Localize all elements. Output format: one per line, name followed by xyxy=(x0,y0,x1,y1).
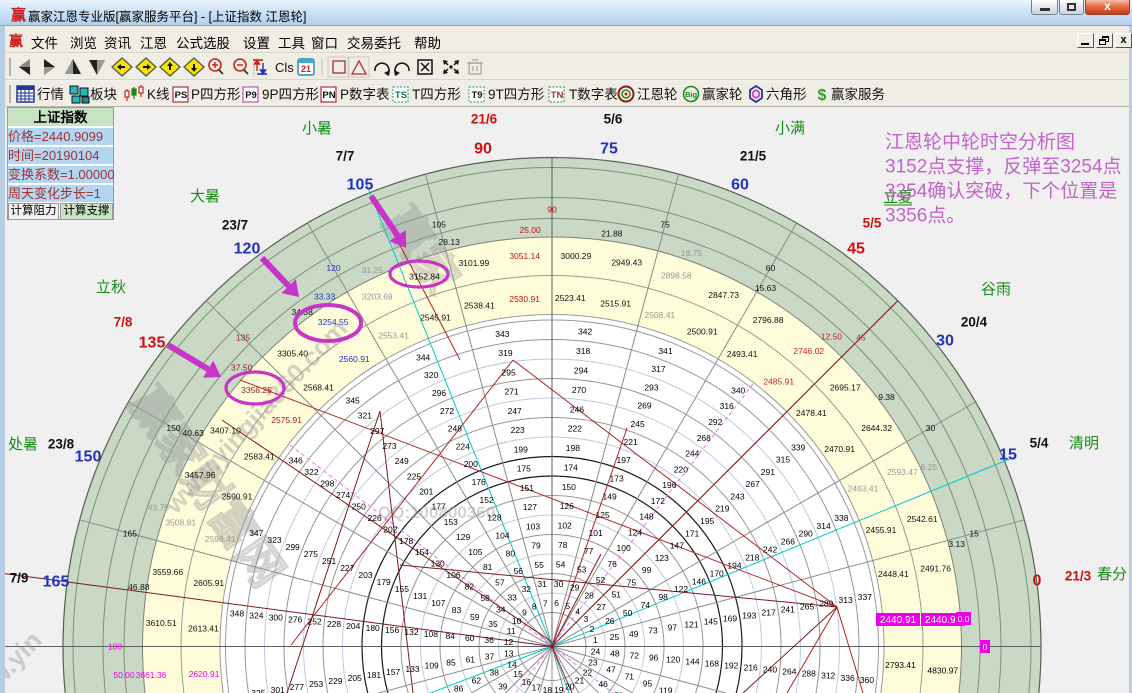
svg-text:291: 291 xyxy=(761,467,775,477)
svg-text:105: 105 xyxy=(347,177,374,194)
svg-text:298: 298 xyxy=(320,478,334,488)
svg-text:20: 20 xyxy=(565,682,575,692)
svg-text:48: 48 xyxy=(610,648,620,658)
svg-text:338: 338 xyxy=(834,513,848,523)
svg-text:7/9: 7/9 xyxy=(10,571,29,586)
svg-text:75: 75 xyxy=(660,220,670,230)
svg-text:201: 201 xyxy=(419,487,433,497)
svg-text:176: 176 xyxy=(472,477,486,487)
svg-text:265: 265 xyxy=(800,601,814,611)
svg-text:2485.91: 2485.91 xyxy=(763,376,794,386)
svg-text:173: 173 xyxy=(610,473,624,483)
svg-text:21/6: 21/6 xyxy=(471,112,498,127)
svg-text:168: 168 xyxy=(705,659,719,669)
svg-text:2448.41: 2448.41 xyxy=(878,569,909,579)
svg-text:129: 129 xyxy=(456,532,470,542)
svg-text:2560.91: 2560.91 xyxy=(339,354,370,364)
svg-text:6: 6 xyxy=(554,598,559,608)
svg-text:244: 244 xyxy=(685,449,699,459)
svg-text:9T四方形: 9T四方形 xyxy=(488,87,545,102)
svg-text:34: 34 xyxy=(496,605,506,615)
svg-text:248: 248 xyxy=(448,424,462,434)
svg-text:3.13: 3.13 xyxy=(948,539,965,549)
svg-text:82: 82 xyxy=(465,582,475,592)
svg-text:124: 124 xyxy=(628,527,642,537)
svg-text:P四方形: P四方形 xyxy=(191,87,241,102)
svg-text:16: 16 xyxy=(522,677,532,687)
svg-text:77: 77 xyxy=(584,546,594,556)
svg-text:240: 240 xyxy=(763,665,777,675)
svg-text:49: 49 xyxy=(629,629,639,639)
svg-text:205: 205 xyxy=(348,673,362,683)
svg-text:314: 314 xyxy=(817,521,831,531)
svg-text:272: 272 xyxy=(440,406,454,416)
svg-text:125: 125 xyxy=(596,510,610,520)
svg-text:33.33: 33.33 xyxy=(314,292,336,302)
svg-text:28.13: 28.13 xyxy=(439,237,461,247)
svg-text:174: 174 xyxy=(564,462,578,472)
svg-text:324: 324 xyxy=(249,611,263,621)
svg-text:131: 131 xyxy=(413,591,427,601)
svg-text:290: 290 xyxy=(799,529,813,539)
svg-text:5/6: 5/6 xyxy=(604,112,623,127)
svg-text:322: 322 xyxy=(304,467,318,477)
svg-text:3051.14: 3051.14 xyxy=(509,251,540,261)
svg-text:73: 73 xyxy=(648,626,658,636)
svg-text:106: 106 xyxy=(446,570,460,580)
svg-text:10: 10 xyxy=(512,616,522,626)
svg-text:127: 127 xyxy=(523,502,537,512)
svg-text:30: 30 xyxy=(936,333,954,350)
svg-text:81: 81 xyxy=(483,562,493,572)
svg-text:121: 121 xyxy=(684,620,698,630)
svg-text:276: 276 xyxy=(288,615,302,625)
svg-text:104: 104 xyxy=(495,531,509,541)
svg-text:123: 123 xyxy=(655,553,669,563)
svg-text:192: 192 xyxy=(724,661,738,671)
svg-text:2746.02: 2746.02 xyxy=(793,346,824,356)
svg-text:2470.91: 2470.91 xyxy=(824,444,855,454)
svg-text:225: 225 xyxy=(407,471,421,481)
svg-text:六角形: 六角形 xyxy=(766,87,807,102)
svg-text:2568.41: 2568.41 xyxy=(303,382,334,392)
svg-text:12: 12 xyxy=(504,637,514,647)
svg-text:172: 172 xyxy=(651,496,665,506)
svg-text:9.38: 9.38 xyxy=(878,392,895,402)
svg-text:320: 320 xyxy=(424,370,438,380)
svg-text:108: 108 xyxy=(424,629,438,639)
svg-text:2695.17: 2695.17 xyxy=(830,382,861,392)
svg-text:0.0: 0.0 xyxy=(958,614,970,624)
svg-text:2: 2 xyxy=(590,624,595,634)
svg-text:赢家服务: 赢家服务 xyxy=(831,86,885,102)
svg-text:220: 220 xyxy=(674,464,688,474)
svg-text:清明: 清明 xyxy=(1069,435,1099,452)
svg-text:9P四方形: 9P四方形 xyxy=(262,87,320,102)
svg-text:2593.47: 2593.47 xyxy=(887,467,918,477)
svg-text:266: 266 xyxy=(781,537,795,547)
svg-text:241: 241 xyxy=(781,604,795,614)
svg-text:33: 33 xyxy=(507,593,517,603)
svg-text:318: 318 xyxy=(576,346,590,356)
svg-text:293: 293 xyxy=(644,382,658,392)
svg-text:31.25: 31.25 xyxy=(362,265,384,275)
svg-text:315: 315 xyxy=(776,455,790,465)
svg-text:0: 0 xyxy=(983,642,988,652)
svg-text:252: 252 xyxy=(308,617,322,627)
svg-text:K线: K线 xyxy=(147,87,170,102)
svg-text:2542.61: 2542.61 xyxy=(907,514,938,524)
svg-text:小满: 小满 xyxy=(775,120,805,137)
svg-text:3661.36: 3661.36 xyxy=(136,670,167,680)
svg-text:大暑: 大暑 xyxy=(190,188,220,205)
svg-text:126: 126 xyxy=(560,501,574,511)
svg-text:226: 226 xyxy=(368,513,382,523)
svg-text:274: 274 xyxy=(336,490,350,500)
svg-text:289: 289 xyxy=(819,598,833,608)
svg-text:336: 336 xyxy=(841,673,855,683)
svg-text:177: 177 xyxy=(432,502,446,512)
svg-text:316: 316 xyxy=(720,401,734,411)
svg-text:3254.55: 3254.55 xyxy=(318,317,349,327)
svg-text:谷雨: 谷雨 xyxy=(981,281,1011,298)
svg-text:2898.58: 2898.58 xyxy=(661,270,692,280)
svg-text:3203.69: 3203.69 xyxy=(362,291,393,301)
svg-text:217: 217 xyxy=(762,607,776,617)
svg-text:45: 45 xyxy=(856,333,866,343)
svg-text:19: 19 xyxy=(554,685,564,693)
svg-text:242: 242 xyxy=(763,545,777,555)
svg-text:20/4: 20/4 xyxy=(961,315,988,330)
svg-text:3: 3 xyxy=(584,614,589,624)
svg-text:2575.91: 2575.91 xyxy=(271,415,302,425)
svg-text:2620.91: 2620.91 xyxy=(189,669,220,679)
svg-text:2538.41: 2538.41 xyxy=(464,300,495,310)
svg-text:197: 197 xyxy=(617,455,631,465)
svg-text:227: 227 xyxy=(340,563,354,573)
svg-text:62: 62 xyxy=(472,675,482,685)
svg-text:55: 55 xyxy=(534,560,544,570)
svg-text:337: 337 xyxy=(858,592,872,602)
svg-text:32: 32 xyxy=(522,584,532,594)
svg-text:250: 250 xyxy=(352,501,366,511)
svg-text:60: 60 xyxy=(731,177,749,194)
svg-text:299: 299 xyxy=(286,542,300,552)
svg-text:152: 152 xyxy=(480,495,494,505)
svg-text:109: 109 xyxy=(425,661,439,671)
svg-text:275: 275 xyxy=(304,549,318,559)
svg-text:165: 165 xyxy=(123,529,137,539)
svg-text:22: 22 xyxy=(583,667,593,677)
svg-text:3305.40: 3305.40 xyxy=(277,349,308,359)
svg-text:196: 196 xyxy=(662,480,676,490)
svg-text:149: 149 xyxy=(603,492,617,502)
svg-text:21: 21 xyxy=(301,64,311,74)
svg-text:3000.29: 3000.29 xyxy=(561,251,592,261)
svg-text:52: 52 xyxy=(596,575,606,585)
svg-text:175: 175 xyxy=(517,464,531,474)
svg-text:122: 122 xyxy=(674,584,688,594)
svg-text:165: 165 xyxy=(43,574,70,591)
svg-text:120: 120 xyxy=(234,241,261,258)
svg-text:105: 105 xyxy=(432,220,446,230)
svg-text:146: 146 xyxy=(692,576,706,586)
svg-text:处暑: 处暑 xyxy=(8,436,38,453)
svg-text:2508.41: 2508.41 xyxy=(644,310,675,320)
svg-text:5/4: 5/4 xyxy=(1030,436,1049,451)
svg-text:31: 31 xyxy=(537,579,547,589)
svg-text:325: 325 xyxy=(251,688,265,693)
svg-text:P9: P9 xyxy=(245,90,257,101)
svg-text:2590.91: 2590.91 xyxy=(222,492,253,502)
svg-text:3356.25: 3356.25 xyxy=(241,385,272,395)
svg-text:行情: 行情 xyxy=(37,87,64,102)
svg-text:135: 135 xyxy=(236,333,250,343)
svg-text:2500.91: 2500.91 xyxy=(687,327,718,337)
svg-text:71: 71 xyxy=(625,671,635,681)
svg-text:295: 295 xyxy=(502,367,516,377)
svg-text:2598.41: 2598.41 xyxy=(205,534,236,544)
svg-text:53: 53 xyxy=(577,564,587,574)
svg-text:181: 181 xyxy=(367,670,381,680)
svg-text:120: 120 xyxy=(326,263,340,273)
svg-text:江恩轮: 江恩轮 xyxy=(637,87,678,102)
svg-text:43.75: 43.75 xyxy=(148,502,170,512)
svg-text:50.00: 50.00 xyxy=(113,670,135,680)
svg-text:98: 98 xyxy=(658,592,668,602)
svg-text:3559.66: 3559.66 xyxy=(152,567,183,577)
svg-text:45: 45 xyxy=(847,241,865,258)
svg-text:2605.91: 2605.91 xyxy=(193,578,224,588)
svg-text:195: 195 xyxy=(700,516,714,526)
svg-text:40.63: 40.63 xyxy=(183,428,205,438)
svg-text:340: 340 xyxy=(731,385,745,395)
svg-text:2515.91: 2515.91 xyxy=(600,299,631,309)
svg-text:204: 204 xyxy=(346,621,360,631)
svg-text:T9: T9 xyxy=(471,90,482,101)
svg-text:2523.41: 2523.41 xyxy=(555,293,586,303)
svg-text:101: 101 xyxy=(589,528,603,538)
svg-text:T数字表: T数字表 xyxy=(569,87,618,102)
svg-text:59: 59 xyxy=(470,612,480,622)
svg-text:2478.41: 2478.41 xyxy=(796,408,827,418)
svg-text:1: 1 xyxy=(593,635,598,645)
svg-text:86: 86 xyxy=(454,683,464,693)
svg-text:171: 171 xyxy=(685,528,699,538)
svg-text:24: 24 xyxy=(591,646,601,656)
svg-text:144: 144 xyxy=(685,657,699,667)
svg-text:47: 47 xyxy=(606,664,616,674)
svg-text:14: 14 xyxy=(507,660,517,670)
svg-text:249: 249 xyxy=(395,456,409,466)
svg-text:28: 28 xyxy=(584,591,594,601)
svg-text:147: 147 xyxy=(670,541,684,551)
svg-text:97: 97 xyxy=(668,623,678,633)
svg-text:224: 224 xyxy=(456,441,470,451)
svg-text:348: 348 xyxy=(230,609,244,619)
svg-text:148: 148 xyxy=(639,512,653,522)
svg-text:269: 269 xyxy=(637,401,651,411)
svg-text:317: 317 xyxy=(651,364,665,374)
svg-text:30: 30 xyxy=(926,423,936,433)
svg-text:203: 203 xyxy=(358,570,372,580)
svg-text:180: 180 xyxy=(366,623,380,633)
svg-text:3254确认突破，下个位置是: 3254确认突破，下个位置是 xyxy=(885,180,1117,202)
svg-text:54: 54 xyxy=(556,559,566,569)
svg-text:3152点支撑，反弹至3254点: 3152点支撑，反弹至3254点 xyxy=(885,156,1122,178)
svg-text:2493.41: 2493.41 xyxy=(727,349,758,359)
svg-text:小暑: 小暑 xyxy=(302,120,332,137)
svg-text:2793.41: 2793.41 xyxy=(885,660,916,670)
svg-text:PN: PN xyxy=(322,90,335,101)
svg-text:8: 8 xyxy=(532,602,537,612)
svg-text:221: 221 xyxy=(624,437,638,447)
svg-text:23/7: 23/7 xyxy=(222,218,248,233)
svg-text:7/7: 7/7 xyxy=(336,149,355,164)
svg-text:292: 292 xyxy=(708,417,722,427)
svg-text:75: 75 xyxy=(600,141,618,158)
svg-text:23/8: 23/8 xyxy=(48,437,75,452)
svg-text:321: 321 xyxy=(358,411,372,421)
svg-text:15.63: 15.63 xyxy=(755,283,777,293)
svg-text:TN: TN xyxy=(551,90,564,101)
svg-text:154: 154 xyxy=(415,547,429,557)
svg-text:342: 342 xyxy=(578,327,592,337)
svg-text:273: 273 xyxy=(382,441,396,451)
svg-text:193: 193 xyxy=(742,611,756,621)
svg-text:13: 13 xyxy=(504,649,514,659)
svg-text:202: 202 xyxy=(383,524,397,534)
svg-text:78: 78 xyxy=(558,540,568,550)
svg-text:169: 169 xyxy=(723,614,737,624)
svg-text:12.50: 12.50 xyxy=(821,331,843,341)
svg-text:223: 223 xyxy=(511,425,525,435)
svg-text:11: 11 xyxy=(507,626,516,636)
svg-text:Big: Big xyxy=(685,90,698,99)
svg-text:3152.84: 3152.84 xyxy=(409,272,440,282)
svg-text:323: 323 xyxy=(267,535,281,545)
svg-text:57: 57 xyxy=(495,577,505,587)
svg-text:343: 343 xyxy=(495,329,509,339)
svg-text:2530.91: 2530.91 xyxy=(509,294,540,304)
svg-text:春分: 春分 xyxy=(1097,566,1127,583)
svg-text:25.00: 25.00 xyxy=(519,225,541,235)
svg-text:103: 103 xyxy=(526,521,540,531)
svg-text:35: 35 xyxy=(488,619,498,629)
svg-text:T四方形: T四方形 xyxy=(412,87,461,102)
svg-text:180: 180 xyxy=(108,642,122,652)
svg-text:145: 145 xyxy=(704,617,718,627)
svg-text:17: 17 xyxy=(532,683,542,693)
svg-text:21/5: 21/5 xyxy=(740,149,767,164)
svg-text:2613.41: 2613.41 xyxy=(188,623,219,633)
svg-text:2463.41: 2463.41 xyxy=(848,483,879,493)
svg-text:312: 312 xyxy=(821,671,835,681)
svg-text:2796.88: 2796.88 xyxy=(753,315,784,325)
svg-text:58: 58 xyxy=(480,593,490,603)
svg-text:268: 268 xyxy=(697,433,711,443)
svg-text:219: 219 xyxy=(715,504,729,514)
svg-text:6.25: 6.25 xyxy=(921,462,938,472)
svg-text:25: 25 xyxy=(610,632,620,642)
svg-text:120: 120 xyxy=(666,654,680,664)
svg-text:102: 102 xyxy=(558,521,572,531)
svg-text:PS: PS xyxy=(175,90,188,101)
svg-text:21.88: 21.88 xyxy=(601,229,623,239)
svg-text:288: 288 xyxy=(802,669,816,679)
svg-text:83: 83 xyxy=(452,605,462,615)
svg-text:赢家轮: 赢家轮 xyxy=(702,86,743,102)
svg-text:61: 61 xyxy=(466,655,476,665)
svg-text:218: 218 xyxy=(745,553,759,563)
svg-text:128: 128 xyxy=(487,513,501,523)
svg-text:$: $ xyxy=(818,87,827,104)
svg-text:178: 178 xyxy=(399,536,413,546)
svg-text:151: 151 xyxy=(520,483,534,493)
svg-text:253: 253 xyxy=(309,679,323,689)
svg-text:200: 200 xyxy=(464,459,478,469)
svg-text:15: 15 xyxy=(999,447,1017,464)
svg-text:36: 36 xyxy=(484,635,494,645)
svg-text:96: 96 xyxy=(649,652,659,662)
svg-text:277: 277 xyxy=(290,682,304,692)
svg-text:5: 5 xyxy=(565,601,570,611)
svg-text:119: 119 xyxy=(659,685,673,693)
svg-text:2545.91: 2545.91 xyxy=(420,313,451,323)
svg-text:105: 105 xyxy=(468,547,482,557)
svg-text:300: 300 xyxy=(269,613,283,623)
svg-text:30: 30 xyxy=(554,579,564,589)
svg-text:0: 0 xyxy=(1033,573,1042,590)
svg-text:194: 194 xyxy=(727,561,741,571)
svg-text:216: 216 xyxy=(744,663,758,673)
svg-text:294: 294 xyxy=(574,366,588,376)
svg-text:60: 60 xyxy=(766,263,776,273)
svg-text:339: 339 xyxy=(791,442,805,452)
svg-text:132: 132 xyxy=(404,627,418,637)
svg-text:3610.51: 3610.51 xyxy=(146,618,177,628)
svg-text:板块: 板块 xyxy=(90,87,117,102)
svg-text:P数字表: P数字表 xyxy=(340,87,390,102)
svg-text:26: 26 xyxy=(605,616,615,626)
svg-text:2847.73: 2847.73 xyxy=(708,290,739,300)
svg-text:29: 29 xyxy=(570,583,580,593)
svg-text:247: 247 xyxy=(508,406,522,416)
svg-text:4830.97: 4830.97 xyxy=(927,666,958,676)
svg-text:90: 90 xyxy=(547,205,557,215)
svg-text:39: 39 xyxy=(498,682,508,692)
svg-text:立秋: 立秋 xyxy=(96,279,126,296)
svg-text:346: 346 xyxy=(289,456,303,466)
svg-text:270: 270 xyxy=(572,385,586,395)
svg-text:135: 135 xyxy=(139,335,166,352)
svg-text:85: 85 xyxy=(446,658,456,668)
svg-text:271: 271 xyxy=(505,387,519,397)
svg-text:18.75: 18.75 xyxy=(681,248,703,258)
svg-text:3457.96: 3457.96 xyxy=(185,470,216,480)
svg-text:46.88: 46.88 xyxy=(128,582,150,592)
svg-text:3356点。: 3356点。 xyxy=(885,205,965,227)
svg-text:84: 84 xyxy=(446,631,456,641)
svg-text:7/8: 7/8 xyxy=(114,315,133,330)
svg-text:150: 150 xyxy=(166,423,180,433)
svg-text:243: 243 xyxy=(730,491,744,501)
svg-text:156: 156 xyxy=(385,625,399,635)
svg-text:228: 228 xyxy=(327,619,341,629)
svg-text:75: 75 xyxy=(627,577,637,587)
svg-text:301: 301 xyxy=(271,685,285,693)
svg-text:76: 76 xyxy=(607,559,617,569)
